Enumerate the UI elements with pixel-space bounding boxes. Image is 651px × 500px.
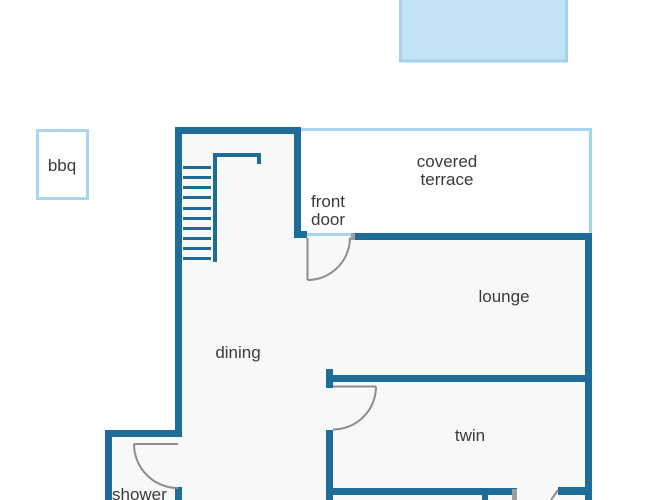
wall-east [585, 233, 592, 500]
stair-railing-top [213, 153, 261, 157]
floor-main [178, 236, 589, 500]
wall-stair-east [294, 127, 301, 238]
stair-tread [183, 257, 211, 260]
stair-tread [183, 196, 211, 199]
stair-tread [183, 207, 211, 210]
label-shower: shower [112, 486, 167, 500]
stair-tread [183, 166, 211, 169]
pool [401, 0, 567, 61]
wall-bottom-stub [482, 488, 488, 500]
wall-twin-west-upper [326, 369, 333, 388]
floor-plan-canvas: bbq covered terrace front door lounge di… [0, 0, 651, 500]
label-covered-terrace-line1: covered [417, 153, 477, 171]
wall-twin-bottom [326, 488, 517, 495]
wall-shower-west [105, 430, 112, 500]
label-dining: dining [215, 344, 260, 362]
stair-tread [183, 247, 211, 250]
label-bbq: bbq [48, 157, 76, 175]
floor-dining-top [178, 130, 298, 240]
wall-west [175, 127, 182, 437]
label-lounge: lounge [478, 288, 529, 306]
label-covered-terrace-line2: terrace [417, 171, 477, 189]
floor-plan-drawing [0, 0, 651, 500]
label-twin: twin [455, 427, 485, 445]
stair-railing [213, 153, 217, 262]
label-front-door-line2: door [311, 211, 345, 229]
stair-tread [183, 176, 211, 179]
wall-lounge-top [351, 233, 592, 240]
stair-tread [183, 186, 211, 189]
stair-tread [183, 237, 211, 240]
label-front-door-line1: front [311, 193, 345, 211]
wall-twin-top [326, 375, 592, 382]
wall-bottom-right [558, 487, 592, 495]
stair-tread [183, 227, 211, 230]
frontdoor-frame-cap [351, 233, 355, 240]
label-front-door: front door [311, 193, 345, 229]
bottom-door-frame-post [512, 489, 517, 500]
wall-frontdoor-stub [294, 231, 307, 238]
label-covered-terrace: covered terrace [417, 153, 477, 189]
wall-top-dining [175, 127, 301, 134]
wall-shower-top [105, 430, 182, 437]
stair-railing-end [257, 153, 261, 164]
stair-tread [183, 217, 211, 220]
